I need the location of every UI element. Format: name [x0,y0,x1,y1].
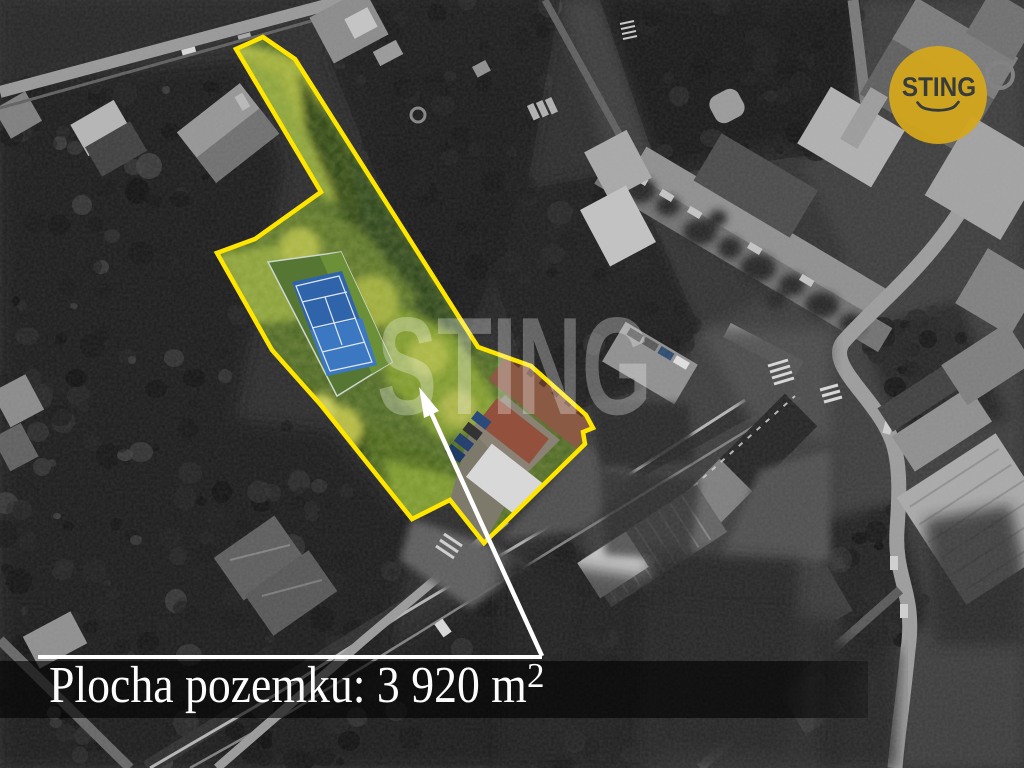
svg-text:2: 2 [527,656,545,695]
svg-text:Plocha pozemku: 3 920 m: Plocha pozemku: 3 920 m [49,657,527,714]
svg-text:STING: STING [902,72,976,102]
svg-text:STING: STING [377,289,652,444]
